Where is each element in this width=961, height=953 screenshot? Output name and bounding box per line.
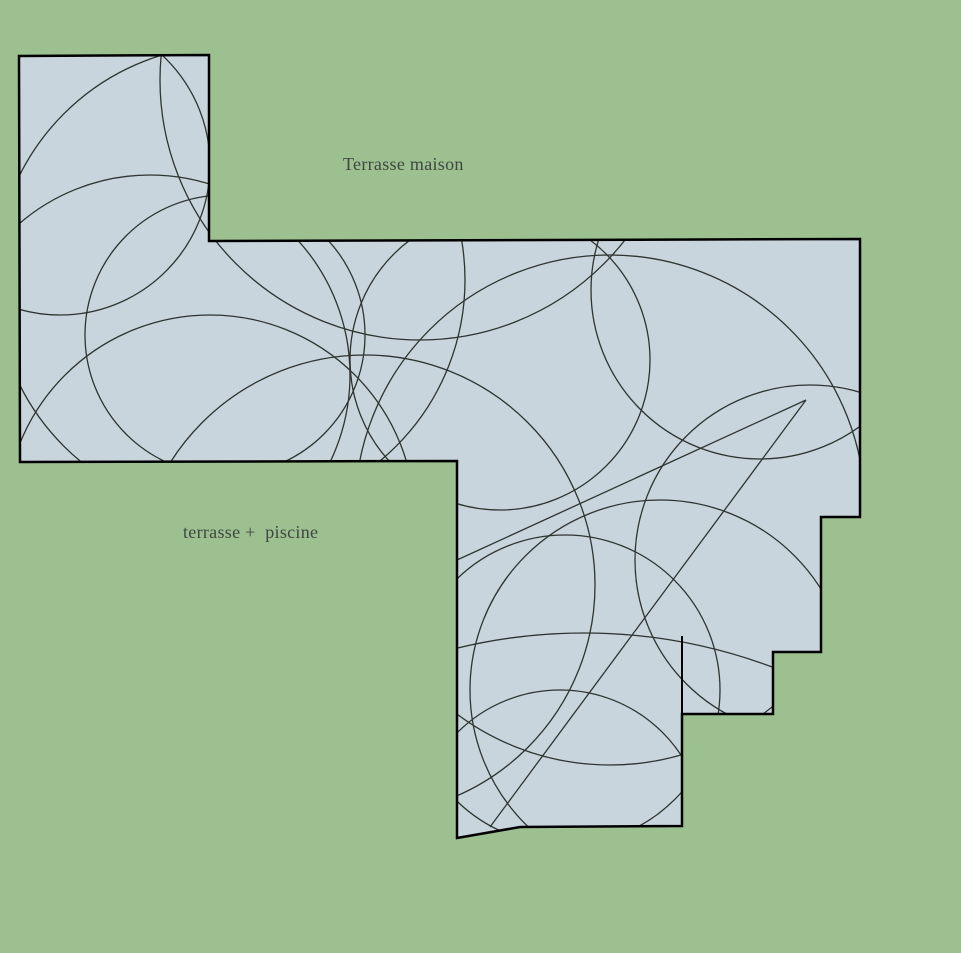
- terrace-plan-canvas[interactable]: [0, 0, 961, 953]
- terrace-house-label: Terrasse maison: [343, 154, 464, 175]
- terrace-pool-label: terrasse + piscine: [183, 522, 318, 543]
- drawing-viewport: Terrasse maison terrasse + piscine: [0, 0, 961, 953]
